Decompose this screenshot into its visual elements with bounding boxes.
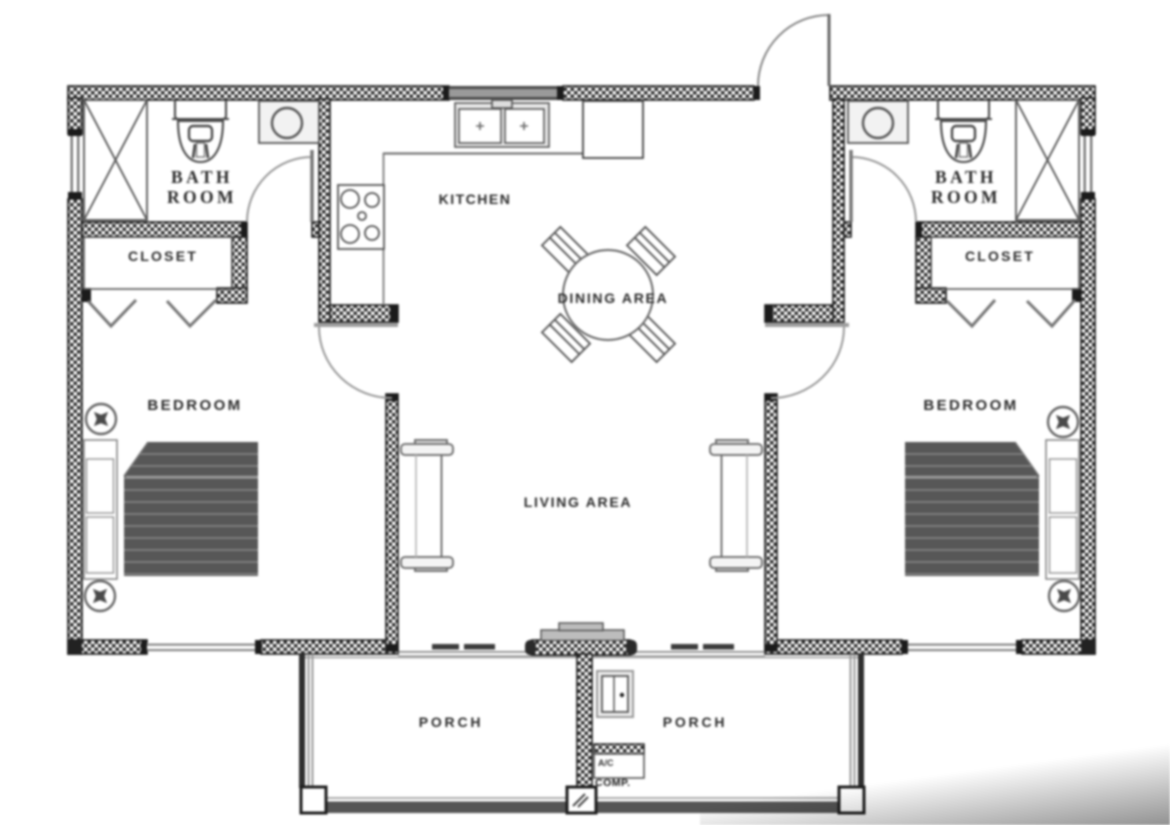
svg-text:CLOSET: CLOSET [965,248,1035,264]
svg-text:DINING AREA: DINING AREA [558,290,669,306]
svg-text:ROOM: ROOM [167,187,237,207]
svg-text:LIVING AREA: LIVING AREA [524,494,632,510]
svg-text:CLOSET: CLOSET [128,248,198,264]
svg-text:BATH: BATH [935,167,997,187]
svg-text:BATH: BATH [171,167,233,187]
svg-text:COMP.: COMP. [595,777,631,789]
svg-text:BEDROOM: BEDROOM [147,397,242,414]
svg-text:BEDROOM: BEDROOM [923,397,1018,414]
svg-text:A/C: A/C [598,758,614,768]
svg-text:KITCHEN: KITCHEN [439,191,512,207]
svg-text:PORCH: PORCH [419,714,484,730]
svg-text:ROOM: ROOM [931,187,1001,207]
